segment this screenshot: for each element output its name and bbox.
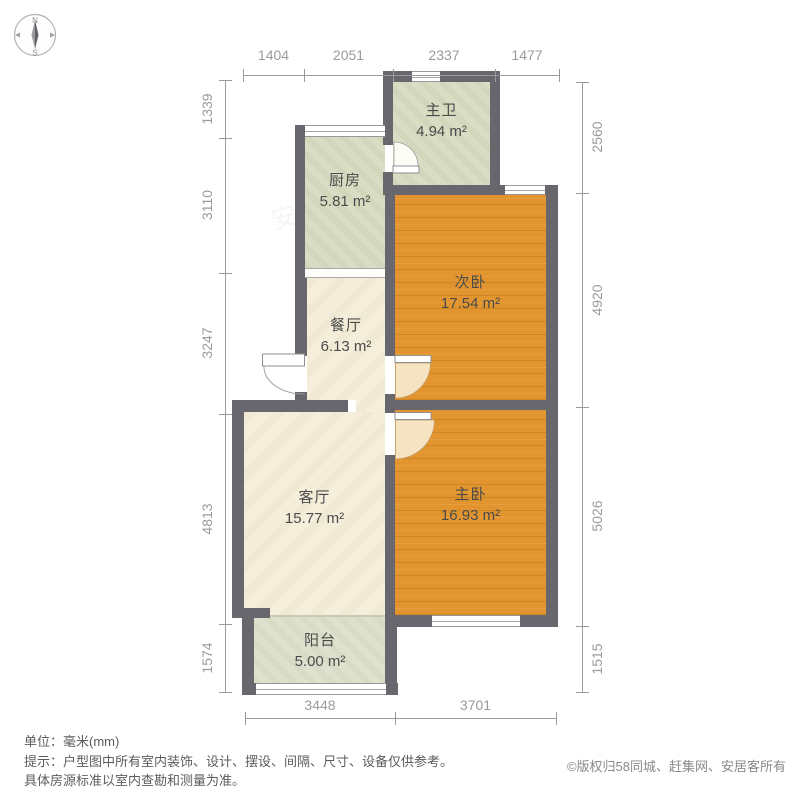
door-entry bbox=[262, 352, 310, 396]
door-second-bedroom bbox=[394, 355, 438, 400]
window-master-bath bbox=[412, 71, 440, 82]
dimension-label: 1404 bbox=[243, 46, 304, 64]
room-label-master-bath: 主卫 4.94 m² bbox=[393, 100, 490, 142]
tip-line-2: 具体房源标准以室内查勘和测量为准。 bbox=[24, 770, 245, 789]
dimension-label: 2560 bbox=[588, 107, 606, 167]
wall bbox=[385, 615, 432, 627]
wall bbox=[546, 195, 558, 627]
dimension-line-top bbox=[243, 75, 560, 76]
tip-line-1: 提示：户型图中所有室内装饰、设计、摆设、间隔、尺寸、设备仅供参考。 bbox=[24, 751, 453, 770]
dimension-label: 3247 bbox=[198, 313, 216, 373]
dimension-label: 1339 bbox=[198, 79, 216, 139]
dimension-tick bbox=[243, 69, 244, 82]
wall bbox=[520, 615, 558, 627]
dimension-tick bbox=[576, 193, 589, 194]
window-kitchen bbox=[305, 125, 385, 137]
wall bbox=[385, 455, 395, 618]
dimension-tick bbox=[219, 624, 232, 625]
dimension-label: 1515 bbox=[588, 629, 606, 689]
copyright-text: ©版权归58同城、赶集网、安居客所有 bbox=[567, 756, 786, 775]
compass-icon: N S bbox=[11, 11, 59, 59]
wall bbox=[545, 185, 558, 195]
wall bbox=[383, 185, 505, 195]
dimension-tick bbox=[219, 273, 232, 274]
dimension-tick bbox=[219, 80, 232, 81]
room-label-dining: 餐厅 6.13 m² bbox=[307, 315, 385, 357]
dimension-label: 2051 bbox=[304, 46, 393, 64]
wall bbox=[490, 71, 500, 195]
dimension-label: 4813 bbox=[198, 489, 216, 549]
dimension-line-bottom bbox=[245, 718, 556, 719]
dimension-tick bbox=[559, 69, 560, 82]
dimension-label: 5026 bbox=[588, 486, 606, 546]
dimension-tick bbox=[576, 692, 589, 693]
room-label-master-bedroom: 主卧 16.93 m² bbox=[395, 484, 546, 526]
window-master-bedroom bbox=[432, 615, 520, 627]
doorway-jamb bbox=[348, 400, 356, 412]
room-label-second-bedroom: 次卧 17.54 m² bbox=[395, 272, 546, 314]
door-master-bath bbox=[392, 139, 422, 175]
kitchen-opening bbox=[305, 268, 385, 278]
dimension-label: 3701 bbox=[395, 696, 556, 714]
wall bbox=[385, 618, 397, 695]
dimension-tick bbox=[304, 69, 305, 82]
dimension-line-left bbox=[225, 80, 226, 692]
dimension-label: 3110 bbox=[198, 175, 216, 235]
wall bbox=[395, 400, 546, 410]
room-label-kitchen: 厨房 5.81 m² bbox=[305, 170, 385, 212]
door-master-bedroom bbox=[394, 412, 438, 462]
dimension-label: 2337 bbox=[393, 46, 495, 64]
dimension-tick bbox=[576, 82, 589, 83]
wall bbox=[242, 683, 256, 695]
dimension-tick bbox=[219, 414, 232, 415]
dimension-tick bbox=[576, 626, 589, 627]
dimension-tick bbox=[576, 407, 589, 408]
room-label-living: 客厅 15.77 m² bbox=[244, 487, 385, 529]
wall bbox=[295, 125, 305, 278]
window-balcony bbox=[256, 683, 386, 695]
dimension-label: 3448 bbox=[245, 696, 395, 714]
wall bbox=[232, 400, 244, 610]
compass: N S bbox=[11, 11, 59, 59]
room-label-balcony: 阳台 5.00 m² bbox=[254, 630, 386, 672]
dimension-tick bbox=[495, 69, 496, 82]
dimension-tick bbox=[219, 692, 232, 693]
compass-south-label: S bbox=[32, 49, 37, 58]
compass-north-label: N bbox=[32, 16, 38, 25]
dimension-tick bbox=[393, 69, 394, 82]
dimension-tick bbox=[219, 138, 232, 139]
wall bbox=[232, 400, 348, 412]
floorplan-canvas: N S 安居客 58同城 58同城 安居客 bbox=[0, 0, 800, 800]
dimension-tick bbox=[556, 712, 557, 725]
window-second-bedroom bbox=[505, 185, 545, 195]
wall bbox=[385, 195, 395, 356]
unit-note: 单位：毫米(mm) bbox=[24, 731, 119, 750]
wall bbox=[295, 278, 307, 356]
dimension-label: 1574 bbox=[198, 628, 216, 688]
dimension-line-right bbox=[582, 82, 583, 692]
dimension-label: 1477 bbox=[495, 46, 559, 64]
dimension-label: 4920 bbox=[588, 270, 606, 330]
